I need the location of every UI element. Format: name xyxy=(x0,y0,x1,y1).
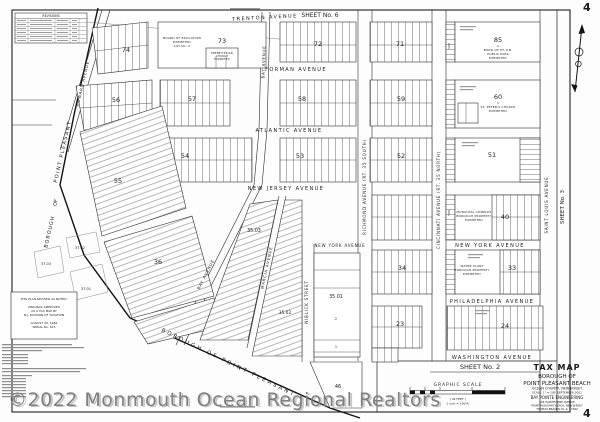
watermark: ©2022 Monmouth Ocean Regional Realtors xyxy=(8,389,468,411)
block-label-40: 40 xyxy=(501,213,509,221)
block-label-59: 59 xyxy=(397,95,405,103)
block-label-500-south: 500 xyxy=(447,210,451,216)
block-label-57: 57 xyxy=(188,95,196,103)
street-label-bay-north: BAY AVENUE xyxy=(260,45,266,78)
block-label-34: 34 xyxy=(398,264,406,272)
title-block-title: TAX MAP xyxy=(534,363,581,372)
block-label-35-03: 35.03 xyxy=(247,228,261,234)
block-label-54: 54 xyxy=(181,152,189,160)
block-label-37-02: 37.02 xyxy=(75,246,85,250)
street-label-saint-louis: SAINT LOUIS AVENUE xyxy=(544,177,549,234)
parcel-text-boe-3: LOT No. 2 xyxy=(174,44,190,48)
street-label-new-jersey: NEW JERSEY AVENUE xyxy=(248,186,325,192)
street-label-atlantic: ATLANTIC AVENUE xyxy=(256,128,323,134)
street-label-new-york-west: NEW YORK AVENUE xyxy=(315,243,366,248)
block-label-72: 72 xyxy=(314,40,322,48)
block-label-71: 71 xyxy=(396,40,404,48)
block-label-37-03: 37.03 xyxy=(41,262,51,266)
parcel-text-municipal-3: EXEMPTED xyxy=(465,218,483,222)
block-label-56: 56 xyxy=(112,96,120,104)
street-label-richmond: RICHMOND AVENUE (RT. 35 SOUTH) xyxy=(362,139,367,235)
block-label-51: 51 xyxy=(488,151,496,159)
block-label-74: 74 xyxy=(122,46,130,54)
block-label-85: 85 xyxy=(494,36,502,44)
street-label-philadelphia: PHILADELPHIA AVENUE xyxy=(450,299,534,305)
parcel-text-church-3: EXEMPTED xyxy=(214,57,230,61)
sheet-label-top: SHEET No. 6 xyxy=(301,12,338,19)
block-label-37-01: 37.01 xyxy=(81,287,91,291)
map-canvas: TRENTON AVENUE FORMAN AVENUE ATLANTIC AV… xyxy=(0,0,600,422)
revisions-title: REVISIONS xyxy=(42,14,59,18)
block-label-35-01: 35.01 xyxy=(329,294,343,300)
block-35-01-lot-2: 2 xyxy=(335,317,337,321)
street-label-washington: WASHINGTON AVENUE xyxy=(452,355,532,361)
sheet-label-bottom: SHEET No. 2 xyxy=(460,363,500,371)
note-line-4: N.J. DIVISION OF TAXATION xyxy=(24,313,64,317)
title-block-line4: SCALE: 1" = 100' SEPTEMBER 2001 xyxy=(532,391,582,395)
parcel-text-stpeters-2: EXEMPTED xyxy=(489,109,507,113)
parcel-text-water-3: EXEMPTED xyxy=(463,272,481,276)
block-label-24: 24 xyxy=(501,322,509,330)
block-label-500-north: 500 xyxy=(447,43,451,49)
title-block: TAX MAP BOROUGH OF POINT PLEASANT BEACH … xyxy=(523,363,591,411)
boundary-label-borough: BOROUGH xyxy=(43,215,56,248)
title-block-line1: BOROUGH OF xyxy=(538,374,576,380)
block-label-36: 36 xyxy=(154,258,162,266)
north-arrow-icon xyxy=(571,24,585,92)
block-label-73: 73 xyxy=(218,37,226,45)
street-label-niblick: NIBLICK STREET xyxy=(304,280,309,323)
street-label-trenton: TRENTON AVENUE xyxy=(231,13,298,22)
approval-note-box: THIS PLAN REVISED AS NOTED: ORIGINAL APP… xyxy=(11,292,77,339)
note-line-6: SERIAL No. 615 xyxy=(32,325,55,329)
title-block-addr3: THOMAS BRASEN, P.L.S. 27282 xyxy=(535,407,578,411)
boundary-label-of: OF xyxy=(52,199,59,207)
block-label-23: 23 xyxy=(396,320,404,328)
block-label-55: 55 xyxy=(114,177,122,185)
parcel-text-park-3: EXEMPTED xyxy=(489,56,507,60)
tax-map-page: 4 4 xyxy=(0,0,600,422)
block-label-35-02: 35.02 xyxy=(279,310,292,316)
sheet-label-right: SHEET No. 3 xyxy=(560,189,566,224)
note-line-1: THIS PLAN REVISED AS NOTED: xyxy=(19,297,67,301)
street-label-forman: FORMAN AVENUE xyxy=(265,67,327,73)
block-label-60: 60 xyxy=(494,93,502,101)
street-label-new-york-east: NEW YORK AVENUE xyxy=(455,243,525,249)
boundary-label-point-pleasant: POINT PLEASANT xyxy=(53,120,73,183)
block-label-58: 58 xyxy=(298,95,306,103)
street-label-cincinnati: CINCINNATI AVENUE (RT. 35 NORTH) xyxy=(436,151,441,249)
block-35-01-lot-1: 1 xyxy=(335,345,337,349)
revisions-table: REVISIONS xyxy=(15,13,87,43)
block-label-53: 53 xyxy=(296,152,304,160)
block-label-52: 52 xyxy=(397,152,405,160)
block-label-33: 33 xyxy=(508,264,516,272)
graphic-scale-title: GRAPHIC SCALE xyxy=(434,382,483,388)
